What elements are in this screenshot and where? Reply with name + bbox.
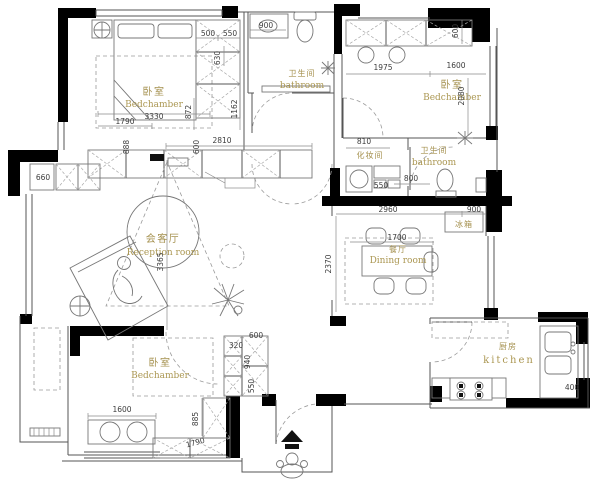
dim-800: 800	[404, 174, 419, 183]
dim-600b: 600	[451, 24, 460, 39]
bathroom1-label-en: bathroom	[280, 81, 325, 91]
kitchen-label-en: kitchen	[483, 355, 535, 366]
bedroom3-label-en: Bedchamber	[131, 371, 190, 381]
plant	[212, 284, 244, 316]
fridge-label: 冰箱	[455, 219, 473, 229]
dim-550b: 550	[374, 181, 389, 190]
dim-900a: 900	[259, 21, 274, 30]
dim-660: 660	[36, 173, 51, 182]
wardrobe-bedroom3	[153, 398, 230, 458]
dim-600c: 600	[249, 331, 264, 340]
dim-810: 810	[357, 137, 372, 146]
kitchen-label-zh: 厨房	[499, 341, 517, 351]
bedroom1-label-zh: 卧室	[143, 85, 166, 98]
dim-872: 872	[184, 105, 193, 120]
stove	[450, 378, 492, 400]
dim-2370: 2370	[324, 254, 333, 273]
reception-label-zh: 会客厅	[146, 232, 181, 245]
entry-marker	[277, 430, 308, 478]
dim-3330: 3330	[144, 112, 163, 121]
dining-label-zh: 餐厅	[389, 245, 407, 254]
dim-600a: 600	[192, 140, 201, 155]
vent-grille	[30, 428, 60, 436]
dim-550a: 550	[223, 29, 238, 38]
dim-630: 630	[213, 51, 222, 66]
bathroom2-label-en: bathroom	[412, 158, 457, 168]
dim-888: 888	[122, 140, 131, 155]
dim-1790a: 1790	[115, 117, 134, 126]
dim-940: 940	[243, 355, 252, 370]
dim-900b: 900	[467, 205, 482, 214]
dim-550c: 550	[247, 379, 256, 394]
dim-1162: 1162	[230, 99, 239, 118]
bathroom2-label-zh: 卫生间	[421, 145, 448, 155]
bathroom1-label-zh: 卫生间	[289, 68, 316, 78]
floor-plan-canvas: 卧室 Bedchamber 卫生间 bathroom 卧室 Bedchamber…	[0, 0, 600, 480]
dim-1975: 1975	[373, 63, 392, 72]
dim-2960: 2960	[378, 205, 397, 214]
dressing-label-zh: 化妆间	[357, 150, 384, 160]
dining-label-en: Dining room	[370, 256, 427, 266]
entry-arrow-icon	[281, 430, 303, 442]
dim-1600b: 1600	[112, 405, 131, 414]
dim-320: 320	[229, 341, 244, 350]
bedroom1-label-en: Bedchamber	[125, 100, 184, 110]
floor-plan-page: 卧室 Bedchamber 卫生间 bathroom 卧室 Bedchamber…	[0, 0, 600, 480]
kitchen: 厨房 kitchen	[432, 322, 578, 400]
bedroom2-label-en: Bedchamber	[423, 93, 482, 103]
dim-2080: 2080	[457, 86, 466, 105]
bathroom-middle: 卫生间 bathroom	[412, 145, 486, 197]
refrigerator: 冰箱	[445, 212, 483, 232]
bedroom-top-right: 卧室 Bedchamber	[346, 20, 482, 145]
dim-3365: 3365	[156, 252, 165, 271]
entry-person-icon	[277, 453, 308, 478]
dim-500: 500	[201, 29, 216, 38]
dining-area: 冰箱 餐厅 Dining room	[345, 212, 483, 304]
dim-1600a: 1600	[446, 61, 465, 70]
dim-1700: 1700	[387, 233, 406, 242]
side-table	[70, 296, 90, 316]
dim-2810: 2810	[212, 136, 231, 145]
dim-400: 400	[565, 383, 580, 392]
reception-room: 会客厅 Reception room	[30, 150, 312, 340]
dim-885: 885	[191, 412, 200, 427]
bedroom3-label-zh: 卧室	[149, 356, 172, 369]
